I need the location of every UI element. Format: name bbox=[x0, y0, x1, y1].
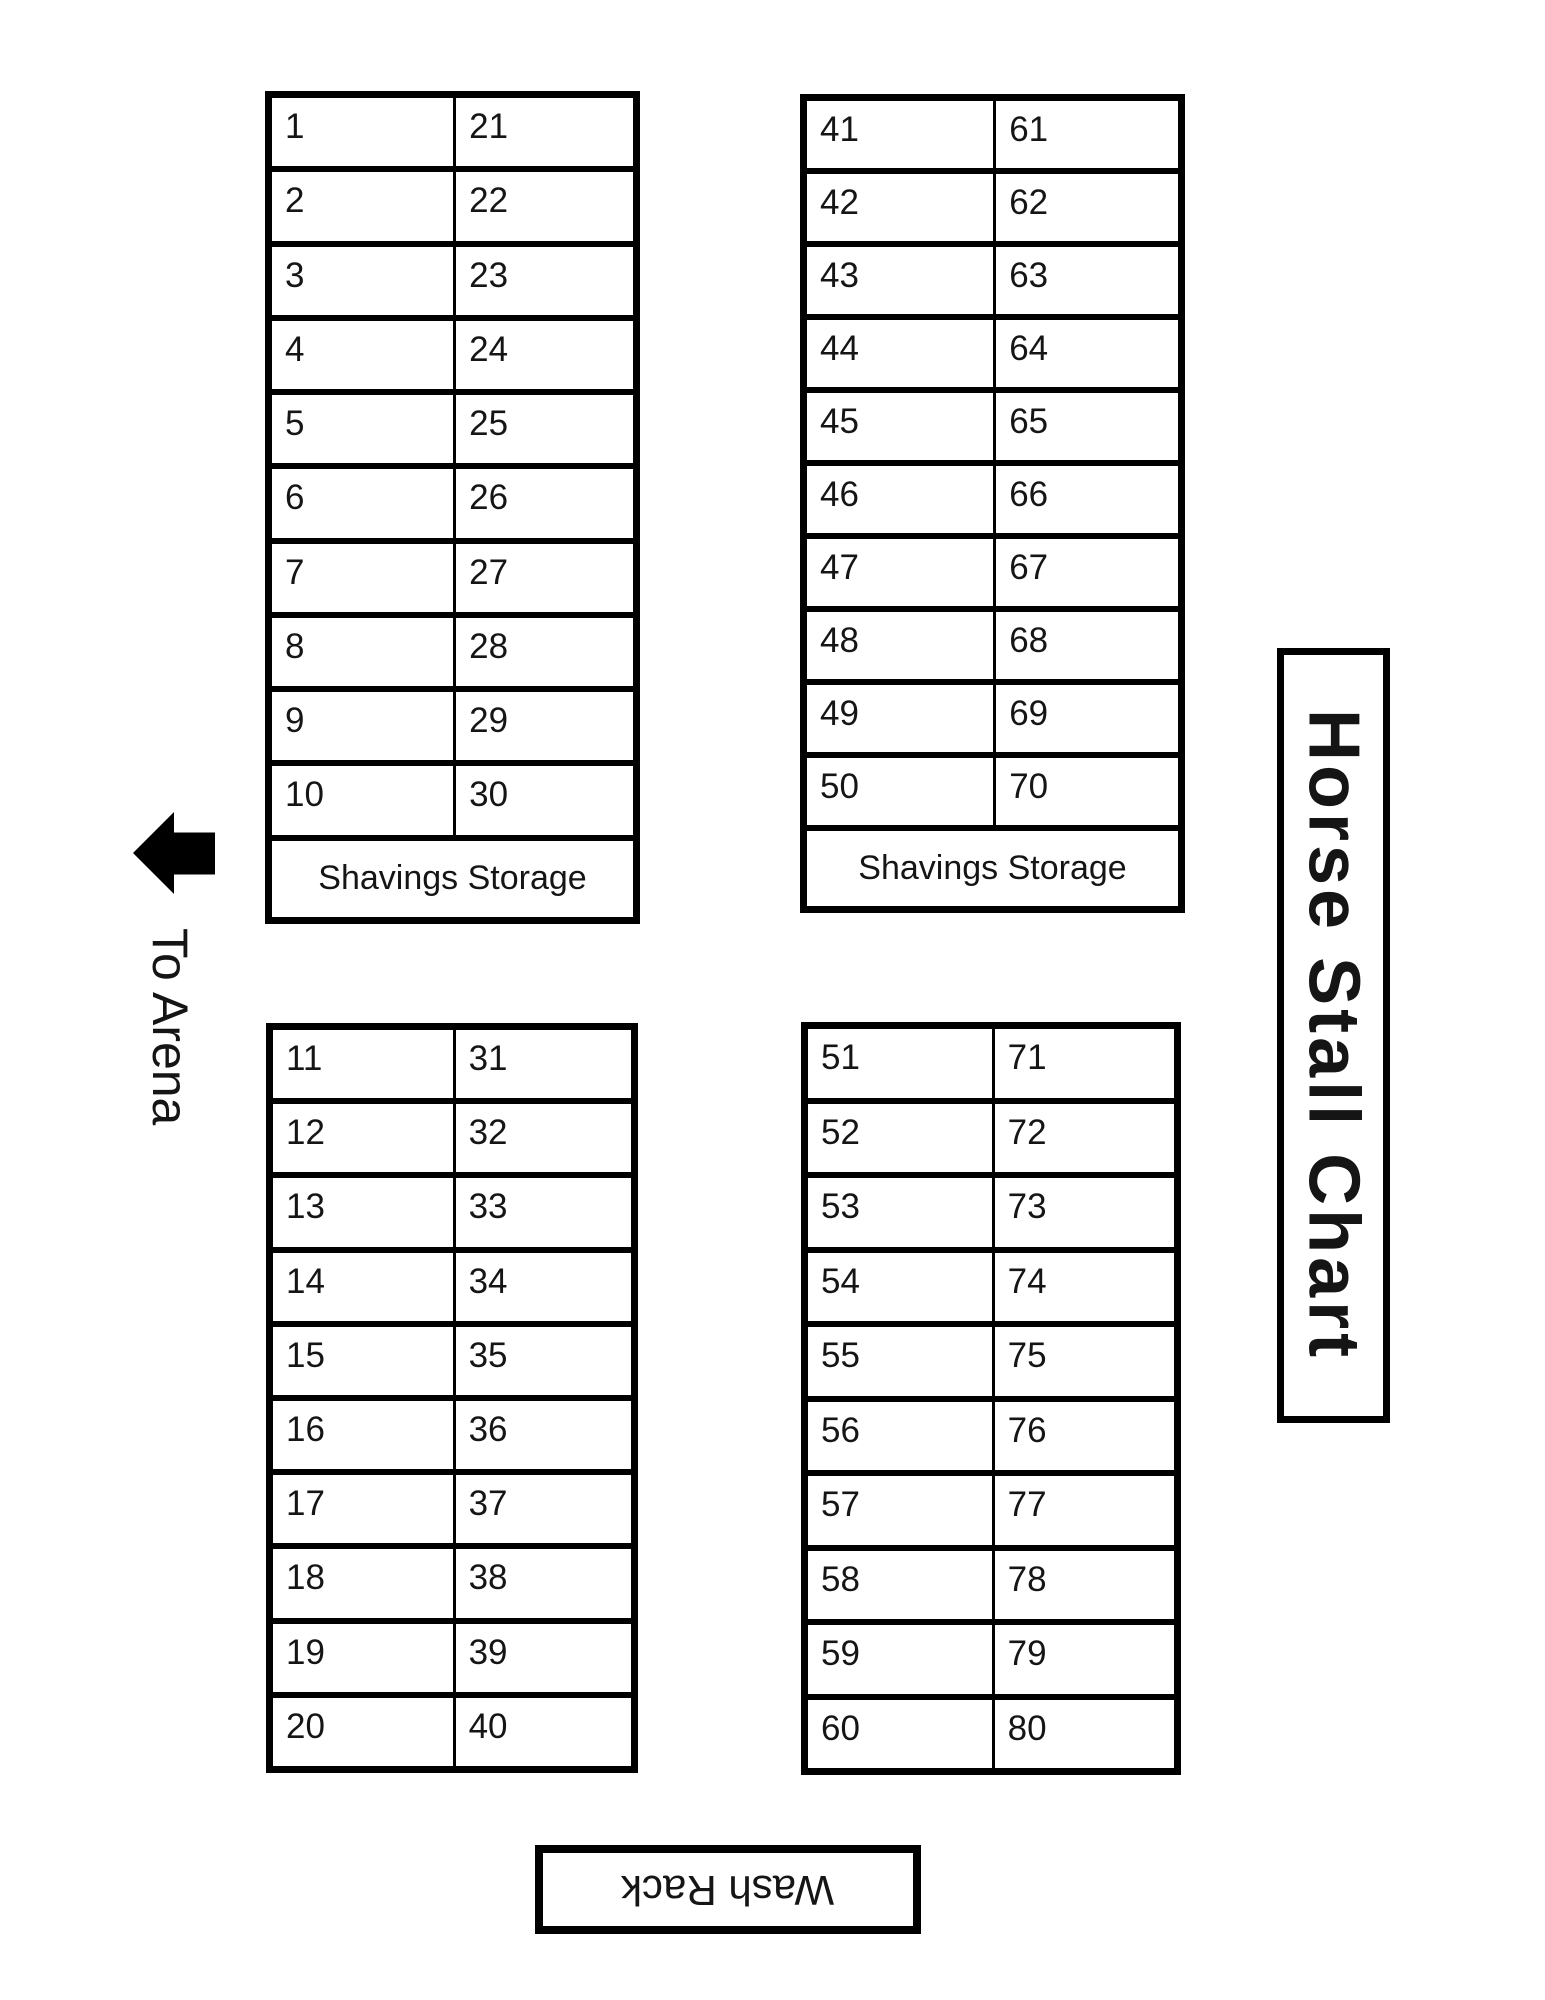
stall-row: 4262 bbox=[807, 168, 1178, 241]
stall-row: 1434 bbox=[273, 1247, 631, 1321]
chart-title: Horse Stall Chart bbox=[1293, 709, 1375, 1361]
stall-cell: 6 bbox=[272, 469, 456, 537]
stall-cell: 35 bbox=[456, 1327, 631, 1395]
shavings-storage-row: Shavings Storage bbox=[272, 835, 633, 917]
wash-rack-label: Wash Rack bbox=[621, 1866, 834, 1914]
stall-cell: 73 bbox=[995, 1178, 1174, 1247]
stall-cell: 1 bbox=[272, 98, 456, 166]
wash-rack-box: Wash Rack bbox=[535, 1845, 921, 1934]
left-arrow-icon bbox=[133, 812, 215, 894]
stall-row: 5272 bbox=[808, 1098, 1174, 1173]
stall-cell: 53 bbox=[808, 1178, 995, 1247]
stall-row: 5171 bbox=[808, 1029, 1174, 1098]
stall-cell: 23 bbox=[456, 247, 633, 315]
stall-cell: 22 bbox=[456, 172, 633, 240]
stall-cell: 8 bbox=[272, 618, 456, 686]
stall-cell: 63 bbox=[996, 247, 1178, 314]
stall-cell: 18 bbox=[273, 1549, 456, 1617]
stall-cell: 24 bbox=[456, 321, 633, 389]
stall-cell: 68 bbox=[996, 612, 1178, 679]
stall-row: 424 bbox=[272, 315, 633, 389]
stall-cell: 33 bbox=[456, 1178, 631, 1246]
stall-cell: 57 bbox=[808, 1476, 995, 1545]
stall-row: 1737 bbox=[273, 1469, 631, 1543]
stall-cell: 71 bbox=[995, 1029, 1174, 1098]
stall-cell: 21 bbox=[456, 98, 633, 166]
stall-cell: 19 bbox=[273, 1624, 456, 1692]
stall-row: 4363 bbox=[807, 241, 1178, 314]
stall-cell: 59 bbox=[808, 1625, 995, 1694]
stall-block-top-right: 4161426243634464456546664767486849695070… bbox=[800, 94, 1185, 913]
shavings-storage-row: Shavings Storage bbox=[807, 825, 1178, 906]
stall-cell: 70 bbox=[996, 758, 1178, 825]
stall-cell: 80 bbox=[995, 1700, 1174, 1769]
stall-cell: 45 bbox=[807, 393, 996, 460]
stall-cell: 65 bbox=[996, 393, 1178, 460]
stall-cell: 34 bbox=[456, 1253, 631, 1321]
stall-cell: 60 bbox=[808, 1700, 995, 1769]
stall-cell: 31 bbox=[456, 1030, 631, 1098]
stall-row: 323 bbox=[272, 241, 633, 315]
stall-row: 4161 bbox=[807, 101, 1178, 168]
stall-block-top-left: 1212223234245256267278289291030Shavings … bbox=[265, 91, 640, 924]
stall-row: 5070 bbox=[807, 752, 1178, 825]
stall-cell: 64 bbox=[996, 320, 1178, 387]
stall-cell: 12 bbox=[273, 1104, 456, 1172]
stall-row: 5676 bbox=[808, 1396, 1174, 1471]
stall-row: 4868 bbox=[807, 606, 1178, 679]
chart-title-box: Horse Stall Chart bbox=[1277, 648, 1390, 1423]
stall-row: 6080 bbox=[808, 1694, 1174, 1769]
stall-block-bottom-left: 1131123213331434153516361737183819392040 bbox=[266, 1023, 638, 1773]
stall-row: 5777 bbox=[808, 1470, 1174, 1545]
stall-row: 525 bbox=[272, 389, 633, 463]
stall-row: 121 bbox=[272, 98, 633, 166]
stall-cell: 44 bbox=[807, 320, 996, 387]
stall-row: 828 bbox=[272, 612, 633, 686]
stall-row: 4969 bbox=[807, 679, 1178, 752]
stall-cell: 52 bbox=[808, 1104, 995, 1173]
stall-cell: 5 bbox=[272, 395, 456, 463]
stall-cell: 4 bbox=[272, 321, 456, 389]
stall-row: 1333 bbox=[273, 1172, 631, 1246]
stall-row: 4565 bbox=[807, 387, 1178, 460]
stall-cell: 77 bbox=[995, 1476, 1174, 1545]
stall-row: 626 bbox=[272, 463, 633, 537]
stall-cell: 58 bbox=[808, 1551, 995, 1620]
stall-cell: 30 bbox=[456, 766, 633, 834]
stall-cell: 10 bbox=[272, 766, 456, 834]
stall-row: 1636 bbox=[273, 1395, 631, 1469]
stall-cell: 72 bbox=[995, 1104, 1174, 1173]
to-arena-label: To Arena bbox=[141, 928, 199, 1158]
stall-cell: 27 bbox=[456, 544, 633, 612]
stall-row: 4767 bbox=[807, 533, 1178, 606]
stall-row: 1232 bbox=[273, 1098, 631, 1172]
stall-cell: 66 bbox=[996, 466, 1178, 533]
stall-cell: 50 bbox=[807, 758, 996, 825]
stall-cell: 29 bbox=[456, 692, 633, 760]
stall-row: 727 bbox=[272, 538, 633, 612]
stall-cell: 56 bbox=[808, 1402, 995, 1471]
stall-row: 5575 bbox=[808, 1321, 1174, 1396]
stall-cell: 2 bbox=[272, 172, 456, 240]
stall-cell: 20 bbox=[273, 1698, 456, 1766]
stall-cell: 55 bbox=[808, 1327, 995, 1396]
stall-cell: 47 bbox=[807, 539, 996, 606]
stall-cell: 11 bbox=[273, 1030, 456, 1098]
stall-cell: 38 bbox=[456, 1549, 631, 1617]
stall-cell: 15 bbox=[273, 1327, 456, 1395]
stall-row: 1131 bbox=[273, 1030, 631, 1098]
stall-cell: 28 bbox=[456, 618, 633, 686]
stall-cell: 51 bbox=[808, 1029, 995, 1098]
stall-cell: 49 bbox=[807, 685, 996, 752]
stall-cell: 61 bbox=[996, 101, 1178, 168]
stall-cell: 42 bbox=[807, 174, 996, 241]
stall-cell: 40 bbox=[456, 1698, 631, 1766]
stall-cell: 32 bbox=[456, 1104, 631, 1172]
stall-cell: 62 bbox=[996, 174, 1178, 241]
stall-cell: 37 bbox=[456, 1475, 631, 1543]
stall-cell: 39 bbox=[456, 1624, 631, 1692]
stall-row: 222 bbox=[272, 166, 633, 240]
stall-cell: 25 bbox=[456, 395, 633, 463]
stall-block-bottom-right: 5171527253735474557556765777587859796080 bbox=[801, 1022, 1181, 1775]
horse-stall-chart-page: 1212223234245256267278289291030Shavings … bbox=[0, 0, 1545, 2000]
stall-cell: 54 bbox=[808, 1253, 995, 1322]
stall-cell: 9 bbox=[272, 692, 456, 760]
stall-cell: 79 bbox=[995, 1625, 1174, 1694]
stall-cell: 36 bbox=[456, 1401, 631, 1469]
stall-cell: 26 bbox=[456, 469, 633, 537]
stall-cell: 78 bbox=[995, 1551, 1174, 1620]
stall-cell: 7 bbox=[272, 544, 456, 612]
stall-cell: 41 bbox=[807, 101, 996, 168]
stall-row: 1838 bbox=[273, 1543, 631, 1617]
stall-cell: 17 bbox=[273, 1475, 456, 1543]
stall-row: 5979 bbox=[808, 1619, 1174, 1694]
stall-row: 5373 bbox=[808, 1172, 1174, 1247]
stall-cell: 74 bbox=[995, 1253, 1174, 1322]
stall-cell: 76 bbox=[995, 1402, 1174, 1471]
stall-row: 5878 bbox=[808, 1545, 1174, 1620]
stall-cell: 48 bbox=[807, 612, 996, 679]
stall-row: 1939 bbox=[273, 1618, 631, 1692]
stall-cell: 14 bbox=[273, 1253, 456, 1321]
stall-row: 4666 bbox=[807, 460, 1178, 533]
stall-row: 1535 bbox=[273, 1321, 631, 1395]
stall-row: 5474 bbox=[808, 1247, 1174, 1322]
stall-cell: 16 bbox=[273, 1401, 456, 1469]
stall-row: 4464 bbox=[807, 314, 1178, 387]
stall-cell: 69 bbox=[996, 685, 1178, 752]
stall-cell: 67 bbox=[996, 539, 1178, 606]
stall-row: 2040 bbox=[273, 1692, 631, 1766]
stall-cell: 3 bbox=[272, 247, 456, 315]
stall-cell: 75 bbox=[995, 1327, 1174, 1396]
stall-row: 1030 bbox=[272, 760, 633, 834]
stall-cell: 43 bbox=[807, 247, 996, 314]
stall-cell: 13 bbox=[273, 1178, 456, 1246]
stall-row: 929 bbox=[272, 686, 633, 760]
stall-cell: 46 bbox=[807, 466, 996, 533]
